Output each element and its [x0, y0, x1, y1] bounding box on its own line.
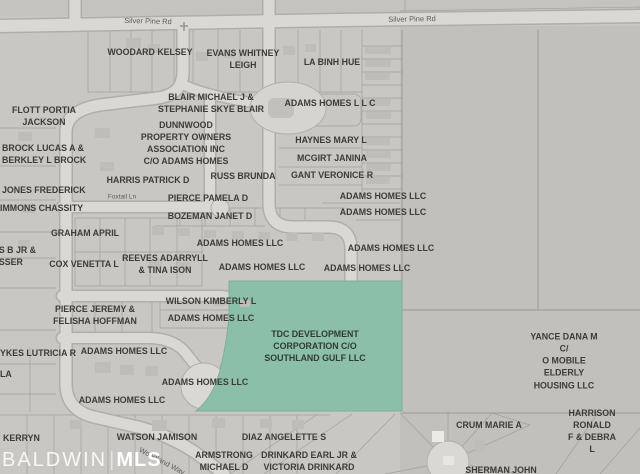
cul-de-sac-small	[211, 199, 229, 217]
watermark-suffix: MLS	[116, 449, 161, 471]
map-canvas[interactable]: WOODARD KELSEYEVANS WHITNEY LEIGHLA BINH…	[0, 0, 640, 474]
pond-island	[268, 98, 294, 118]
mls-watermark: BALDWIN|MLS	[2, 450, 162, 471]
watermark-brand: BALDWIN	[2, 449, 107, 471]
large-parcels-area	[400, 26, 640, 474]
watermark-divider: |	[107, 449, 116, 471]
white-building	[432, 431, 444, 442]
cul-de-sac-building	[443, 456, 454, 465]
parcel-map-graphics	[0, 0, 640, 474]
